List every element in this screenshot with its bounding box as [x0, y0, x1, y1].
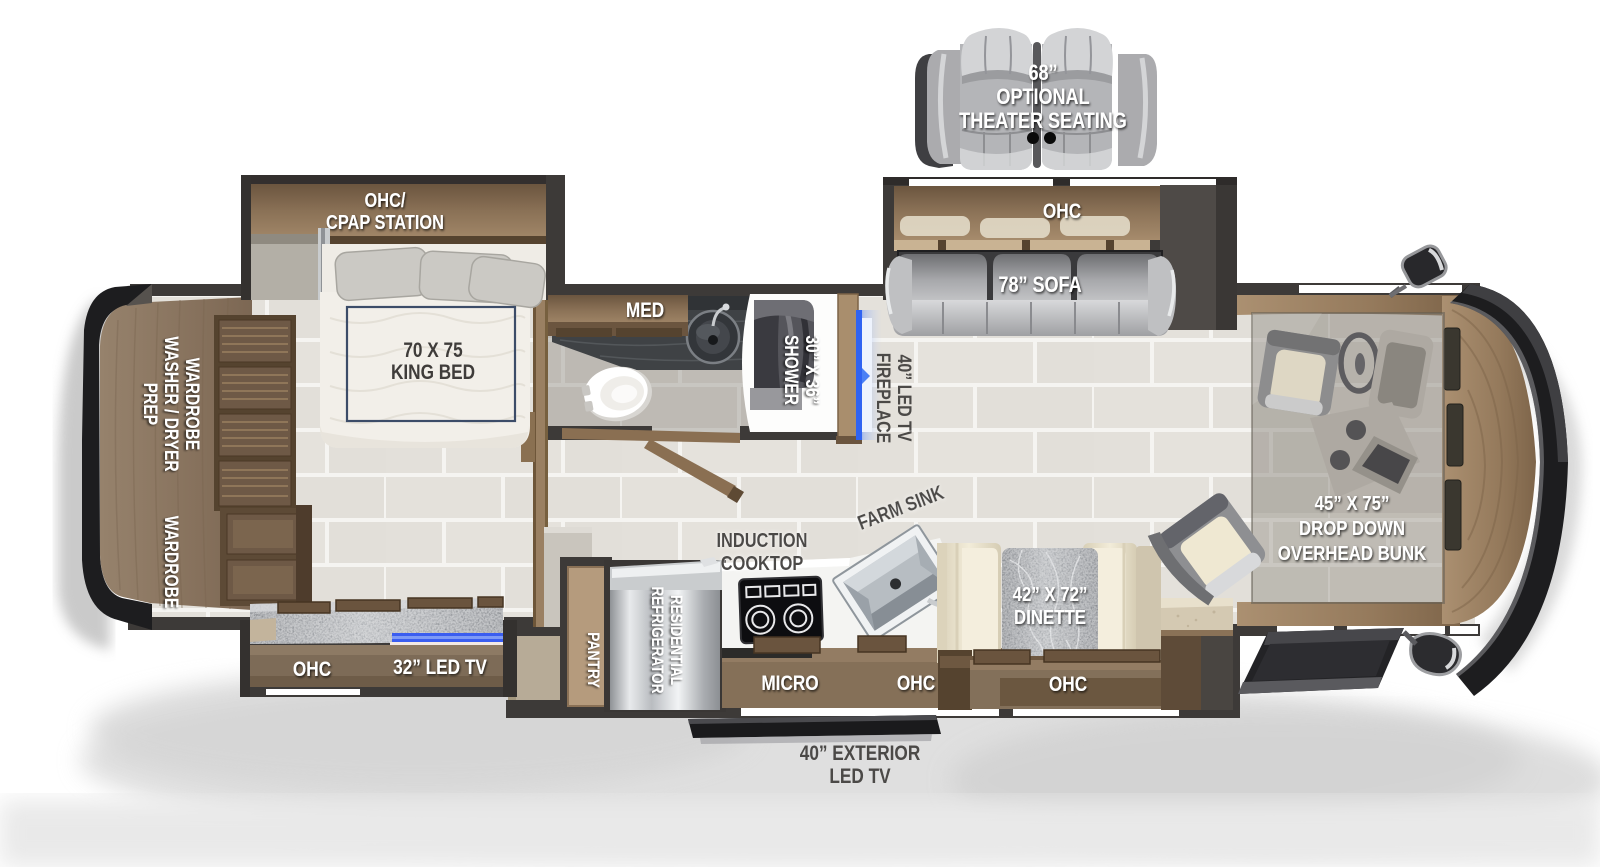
svg-text:MICRO: MICRO [761, 673, 818, 696]
svg-text:INDUCTIONCOOKTOP: INDUCTIONCOOKTOP [716, 528, 807, 574]
svg-text:OHC: OHC [1043, 201, 1081, 224]
svg-text:78” SOFA: 78” SOFA [998, 273, 1081, 297]
svg-text:70 X 75KING BED: 70 X 75KING BED [391, 340, 475, 385]
svg-text:PANTRY: PANTRY [584, 632, 603, 688]
svg-text:42” X 72”DINETTE: 42” X 72”DINETTE [1013, 582, 1088, 628]
svg-text:40” LED TVFIREPLACE: 40” LED TVFIREPLACE [873, 353, 916, 444]
svg-text:RESIDENTIALREFRIGERATOR: RESIDENTIALREFRIGERATOR [648, 587, 686, 694]
svg-text:30” X 36”SHOWER: 30” X 36”SHOWER [781, 335, 824, 405]
svg-text:OHC: OHC [897, 673, 935, 696]
svg-text:MED: MED [626, 300, 664, 323]
svg-text:OHC: OHC [293, 659, 331, 682]
svg-text:WARDROBE: WARDROBE [161, 516, 183, 609]
svg-text:32” LED TV: 32” LED TV [393, 657, 487, 680]
svg-text:OHC: OHC [1049, 674, 1087, 697]
